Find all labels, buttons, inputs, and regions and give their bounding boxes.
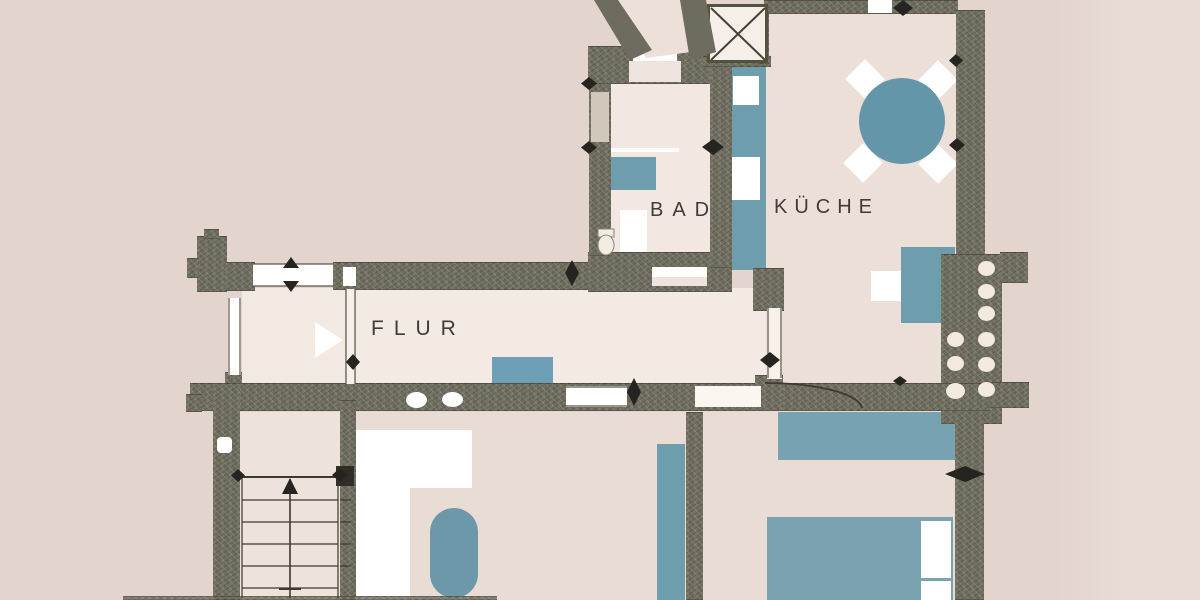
wall-segment — [204, 229, 219, 239]
wall-segment — [764, 0, 958, 14]
room-stairwell — [240, 412, 340, 600]
kitchen-stove — [732, 157, 760, 200]
bedroom-wardrobe — [778, 412, 957, 460]
flue-hole — [946, 383, 965, 399]
label-kueche: KÜCHE — [774, 196, 879, 219]
pillow-icon — [921, 581, 951, 600]
wall-niche — [217, 437, 232, 453]
door-opening — [767, 308, 782, 379]
wall-segment — [686, 412, 703, 600]
flue-hole — [978, 382, 995, 397]
door-opening — [346, 289, 355, 384]
wall-segment — [187, 258, 199, 278]
label-flur: FLUR — [371, 317, 466, 341]
flue-hole — [978, 306, 995, 321]
apartment-floor-plan: BAD KÜCHE FLUR — [0, 0, 1200, 600]
flue-hole — [978, 261, 995, 276]
door-opening — [633, 48, 677, 62]
door-opening — [652, 267, 707, 277]
window — [228, 298, 241, 375]
wall-segment — [333, 262, 600, 290]
wall-segment — [225, 262, 255, 291]
wardrobe-white — [355, 430, 472, 488]
wall-segment — [213, 383, 240, 600]
wall-segment — [1000, 252, 1028, 283]
flue-hole — [978, 357, 995, 372]
wall-segment — [186, 394, 202, 412]
bath-sink — [610, 157, 656, 190]
wall-duct — [442, 392, 463, 407]
door-opening — [652, 277, 707, 286]
door-arrow-icon — [283, 257, 299, 268]
flue-hole — [947, 356, 964, 371]
wall-segment — [955, 405, 984, 600]
wall-duct — [406, 392, 427, 408]
wall-segment — [710, 58, 732, 268]
kitchen-sink — [733, 76, 759, 105]
ventilation-shaft — [707, 4, 768, 63]
flue-hole — [978, 332, 995, 347]
wall-segment — [340, 400, 356, 600]
window-reveal — [591, 92, 609, 142]
door-arrow-icon — [283, 281, 299, 292]
bath-fixture — [620, 210, 647, 253]
wall-segment — [197, 236, 227, 292]
wall-segment — [123, 596, 497, 600]
hallway-rug — [492, 357, 553, 383]
door-opening — [695, 386, 761, 407]
pillow-icon — [921, 521, 951, 578]
wall-slit — [343, 267, 356, 286]
bath-shelf — [608, 148, 679, 152]
kitchen-appliance — [871, 271, 901, 301]
door-opening — [629, 61, 681, 82]
door-opening — [868, 0, 892, 13]
wall-segment — [956, 10, 985, 260]
sideboard — [657, 444, 685, 600]
entrance-arrow-icon — [315, 322, 343, 358]
wall-segment — [753, 268, 784, 311]
flue-hole — [978, 284, 995, 299]
wardrobe-white — [355, 488, 410, 600]
window — [566, 386, 627, 407]
flue-hole — [947, 332, 964, 347]
bathtub-rug-icon — [430, 508, 478, 598]
dining-table-icon — [859, 78, 945, 164]
label-bad: BAD — [650, 199, 718, 222]
